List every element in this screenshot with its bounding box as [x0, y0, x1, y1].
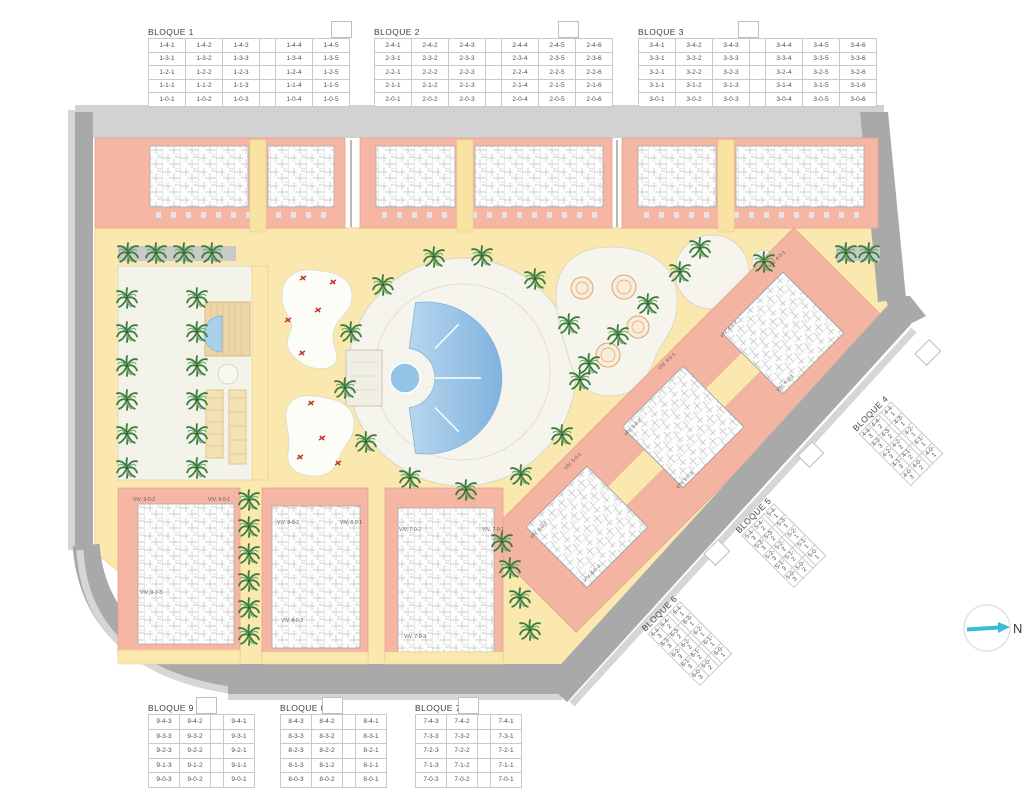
- unit-table: 2-4-12-4-22-4-32-4-42-4-52-4-62-3-12-3-2…: [374, 38, 613, 107]
- table-row: 1-4-11-4-21-4-31-4-41-4-5: [149, 39, 350, 53]
- table-gap: [260, 66, 276, 80]
- unit-cell: 1-2-3: [223, 66, 260, 80]
- unit-cell: 3-4-6: [840, 39, 877, 53]
- north-arrow-icon: [967, 628, 999, 630]
- unit-cell: 2-4-2: [412, 39, 449, 53]
- table-gap: [343, 744, 356, 759]
- unit-label: VIV. 9-0-2: [133, 497, 155, 503]
- unit-cell: 3-3-5: [803, 52, 840, 66]
- table-row: 3-2-13-2-23-2-33-2-43-2-53-2-6: [639, 66, 877, 80]
- table-row: 9-3-39-3-29-3-1: [149, 729, 255, 744]
- unit-cell: 1-1-3: [223, 79, 260, 93]
- unit-cell: 9-4-2: [180, 715, 211, 730]
- unit-cell: 3-1-2: [676, 79, 713, 93]
- unit-cell: 8-0-2: [312, 773, 343, 788]
- table-gap: [343, 729, 356, 744]
- unit-cell: 1-1-5: [313, 79, 350, 93]
- garden-feature-icon: [612, 275, 636, 299]
- unit-cell: 7-4-2: [447, 715, 478, 730]
- table-gap: [486, 66, 502, 80]
- table-row: 9-4-39-4-29-4-1: [149, 715, 255, 730]
- unit-cell: 2-1-3: [449, 79, 486, 93]
- site-plan-page: VIV. 4-0-1VIV. 4-0-2VIV. 4-0-1VIV. 4-0-3…: [0, 0, 1024, 800]
- table-title: BLOQUE 3: [638, 27, 684, 37]
- unit-cell: 1-1-4: [276, 79, 313, 93]
- unit-cell: 2-1-5: [539, 79, 576, 93]
- unit-cell: 1-2-5: [313, 66, 350, 80]
- table-gap: [750, 52, 766, 66]
- unit-cell: 2-0-6: [576, 93, 613, 107]
- table-gap: [260, 79, 276, 93]
- table-gap: [486, 79, 502, 93]
- unit-cell: 7-3-3: [416, 729, 447, 744]
- unit-cell: 8-3-1: [356, 729, 387, 744]
- unit-cell: 1-4-2: [186, 39, 223, 53]
- table-gap: [211, 773, 224, 788]
- unit-label: VIV. 8-0-3: [281, 618, 303, 624]
- unit-cell: 3-3-6: [840, 52, 877, 66]
- unit-cell: 3-1-3: [713, 79, 750, 93]
- unit-cell: 9-2-3: [149, 744, 180, 759]
- unit-cell: 7-3-2: [447, 729, 478, 744]
- unit-cell: 9-0-3: [149, 773, 180, 788]
- unit-cell: 1-4-3: [223, 39, 260, 53]
- unit-cell: 2-2-1: [375, 66, 412, 80]
- garden-feature-icon: [571, 277, 593, 299]
- table-gap: [750, 39, 766, 53]
- unit-cell: 3-2-6: [840, 66, 877, 80]
- unit-cell: 3-4-2: [676, 39, 713, 53]
- table-gap: [486, 93, 502, 107]
- unit-cell: 3-4-4: [766, 39, 803, 53]
- unit-label: VIV. 7-0-3: [404, 634, 426, 640]
- unit-cell: 3-1-4: [766, 79, 803, 93]
- unit-cell: 7-2-1: [491, 744, 522, 759]
- unit-cell: 3-4-5: [803, 39, 840, 53]
- unit-cell: 8-1-2: [312, 758, 343, 773]
- unit-label: VIV. 8-0-2: [277, 520, 299, 526]
- unit-cell: 1-3-4: [276, 52, 313, 66]
- unit-cell: 2-4-5: [539, 39, 576, 53]
- unit-cell: 7-1-2: [447, 758, 478, 773]
- table-row: 2-4-12-4-22-4-32-4-42-4-52-4-6: [375, 39, 613, 53]
- table-gap: [478, 729, 491, 744]
- table-gap: [260, 93, 276, 107]
- unit-cell: 3-3-3: [713, 52, 750, 66]
- unit-cell: 2-0-4: [502, 93, 539, 107]
- south-housing: [118, 488, 503, 664]
- unit-cell: 7-3-1: [491, 729, 522, 744]
- unit-cell: 3-3-2: [676, 52, 713, 66]
- table-gap: [343, 715, 356, 730]
- table-row: 8-4-38-4-28-4-1: [281, 715, 387, 730]
- table-gap: [211, 744, 224, 759]
- unit-cell: 3-0-1: [639, 93, 676, 107]
- table-title: BLOQUE 8: [280, 703, 326, 713]
- unit-cell: 3-2-3: [713, 66, 750, 80]
- unit-cell: 8-1-1: [356, 758, 387, 773]
- table-row: 9-0-39-0-29-0-1: [149, 773, 255, 788]
- unit-label: VIV. 9-0-1: [208, 497, 230, 503]
- table-gap: [260, 52, 276, 66]
- table-row: 3-0-13-0-23-0-33-0-43-0-53-0-6: [639, 93, 877, 107]
- unit-cell: 1-3-1: [149, 52, 186, 66]
- table-row: 2-3-12-3-22-3-32-3-42-3-52-3-6: [375, 52, 613, 66]
- table-row: 3-3-13-3-23-3-33-3-43-3-53-3-6: [639, 52, 877, 66]
- unit-cell: 2-4-4: [502, 39, 539, 53]
- unit-cell: 2-3-1: [375, 52, 412, 66]
- unit-cell: 9-3-2: [180, 729, 211, 744]
- table-row: 7-1-37-1-27-1-1: [416, 758, 522, 773]
- unit-cell: 8-1-3: [281, 758, 312, 773]
- unit-cell: 3-0-5: [803, 93, 840, 107]
- unit-cell: 2-1-4: [502, 79, 539, 93]
- unit-cell: 2-1-1: [375, 79, 412, 93]
- table-row: 2-0-12-0-22-0-32-0-42-0-52-0-6: [375, 93, 613, 107]
- unit-cell: 7-4-1: [491, 715, 522, 730]
- unit-cell: 3-2-4: [766, 66, 803, 80]
- unit-cell: 1-3-5: [313, 52, 350, 66]
- table-gap: [211, 758, 224, 773]
- table-gap: [478, 773, 491, 788]
- unit-cell: 3-0-6: [840, 93, 877, 107]
- unit-cell: 7-1-3: [416, 758, 447, 773]
- pool-bar: [346, 350, 382, 406]
- compass-label: N: [1013, 621, 1022, 636]
- north-compass: N: [964, 605, 1022, 651]
- unit-cell: 8-2-2: [312, 744, 343, 759]
- wood-deck: [204, 302, 250, 356]
- unit-cell: 7-0-3: [416, 773, 447, 788]
- unit-cell: 9-2-2: [180, 744, 211, 759]
- unit-cell: 9-3-3: [149, 729, 180, 744]
- table-row: 1-1-11-1-21-1-31-1-41-1-5: [149, 79, 350, 93]
- unit-cell: 3-4-3: [713, 39, 750, 53]
- south-road: [228, 664, 562, 694]
- table-row: 2-2-12-2-22-2-32-2-42-2-52-2-6: [375, 66, 613, 80]
- round-feature: [218, 364, 238, 384]
- unit-cell: 1-2-4: [276, 66, 313, 80]
- unit-cell: 2-4-1: [375, 39, 412, 53]
- table-row: 1-2-11-2-21-2-31-2-41-2-5: [149, 66, 350, 80]
- unit-cell: 1-4-4: [276, 39, 313, 53]
- table-row: 8-2-38-2-28-2-1: [281, 744, 387, 759]
- unit-cell: 7-0-1: [491, 773, 522, 788]
- unit-cell: 8-3-3: [281, 729, 312, 744]
- table-row: 3-1-13-1-23-1-33-1-43-1-53-1-6: [639, 79, 877, 93]
- unit-cell: 9-1-1: [224, 758, 255, 773]
- unit-cell: 2-0-1: [375, 93, 412, 107]
- table-title: BLOQUE 2: [374, 27, 420, 37]
- table-gap: [750, 66, 766, 80]
- unit-cell: 2-2-3: [449, 66, 486, 80]
- central-plaza: [346, 258, 576, 486]
- unit-cell: 2-2-6: [576, 66, 613, 80]
- table-gap: [486, 39, 502, 53]
- unit-table: 3-4-13-4-23-4-33-4-43-4-53-4-63-3-13-3-2…: [638, 38, 877, 107]
- unit-cell: 8-2-1: [356, 744, 387, 759]
- unit-cell: 2-0-2: [412, 93, 449, 107]
- table-gap: [211, 729, 224, 744]
- unit-table: 8-4-38-4-28-4-18-3-38-3-28-3-18-2-38-2-2…: [280, 714, 387, 788]
- unit-cell: 9-3-1: [224, 729, 255, 744]
- unit-cell: 8-4-2: [312, 715, 343, 730]
- table-gap: [478, 715, 491, 730]
- table-row: 8-0-38-0-28-0-1: [281, 773, 387, 788]
- unit-cell: 8-0-3: [281, 773, 312, 788]
- table-gap: [260, 39, 276, 53]
- unit-cell: 8-0-1: [356, 773, 387, 788]
- unit-cell: 9-1-2: [180, 758, 211, 773]
- unit-cell: 8-4-3: [281, 715, 312, 730]
- unit-cell: 7-0-2: [447, 773, 478, 788]
- table-row: 2-1-12-1-22-1-32-1-42-1-52-1-6: [375, 79, 613, 93]
- stair-symbol-box: [196, 697, 217, 714]
- unit-cell: 8-3-2: [312, 729, 343, 744]
- unit-cell: 2-3-2: [412, 52, 449, 66]
- unit-cell: 7-2-3: [416, 744, 447, 759]
- table-gap: [750, 79, 766, 93]
- unit-table: 9-4-39-4-29-4-19-3-39-3-29-3-19-2-39-2-2…: [148, 714, 255, 788]
- unit-table: 1-4-11-4-21-4-31-4-41-4-51-3-11-3-21-3-3…: [148, 38, 350, 107]
- unit-cell: 3-1-5: [803, 79, 840, 93]
- unit-cell: 1-4-5: [313, 39, 350, 53]
- unit-cell: 1-3-3: [223, 52, 260, 66]
- unit-cell: 1-3-2: [186, 52, 223, 66]
- unit-cell: 3-1-1: [639, 79, 676, 93]
- table-row: 3-4-13-4-23-4-33-4-43-4-53-4-6: [639, 39, 877, 53]
- unit-cell: 3-2-5: [803, 66, 840, 80]
- table-row: 8-3-38-3-28-3-1: [281, 729, 387, 744]
- unit-cell: 3-0-2: [676, 93, 713, 107]
- unit-cell: 3-2-1: [639, 66, 676, 80]
- unit-cell: 8-4-1: [356, 715, 387, 730]
- table-row: 9-1-39-1-29-1-1: [149, 758, 255, 773]
- unit-cell: 2-2-5: [539, 66, 576, 80]
- west-road: [75, 112, 93, 552]
- unit-cell: 2-0-5: [539, 93, 576, 107]
- table-bloque-7: BLOQUE 7 7-4-37-4-27-4-17-3-37-3-27-3-17…: [415, 698, 522, 788]
- table-gap: [343, 758, 356, 773]
- garden-feature-icon: [627, 316, 649, 338]
- table-gap: [211, 715, 224, 730]
- unit-cell: 8-2-3: [281, 744, 312, 759]
- table-title: BLOQUE 1: [148, 27, 194, 37]
- unit-cell: 1-0-5: [313, 93, 350, 107]
- north-road: [75, 105, 884, 138]
- unit-cell: 3-0-3: [713, 93, 750, 107]
- unit-cell: 2-1-2: [412, 79, 449, 93]
- unit-cell: 2-1-6: [576, 79, 613, 93]
- unit-cell: 7-1-1: [491, 758, 522, 773]
- unit-cell: 2-3-6: [576, 52, 613, 66]
- unit-cell: 2-3-4: [502, 52, 539, 66]
- unit-cell: 1-1-2: [186, 79, 223, 93]
- unit-cell: 3-3-1: [639, 52, 676, 66]
- unit-cell: 9-0-2: [180, 773, 211, 788]
- unit-cell: 2-2-2: [412, 66, 449, 80]
- unit-cell: 1-0-4: [276, 93, 313, 107]
- unit-cell: 3-4-1: [639, 39, 676, 53]
- unit-label: VIV. 8-0-1: [340, 520, 362, 526]
- unit-table: 7-4-37-4-27-4-17-3-37-3-27-3-17-2-37-2-2…: [415, 714, 522, 788]
- unit-label: VIV. 7-0-1: [482, 527, 504, 533]
- unit-cell: 1-2-2: [186, 66, 223, 80]
- unit-cell: 2-2-4: [502, 66, 539, 80]
- table-row: 9-2-39-2-29-2-1: [149, 744, 255, 759]
- unit-cell: 1-1-1: [149, 79, 186, 93]
- stair-symbol-box: [558, 21, 579, 38]
- table-row: 7-0-37-0-27-0-1: [416, 773, 522, 788]
- table-bloque-1: BLOQUE 1 1-4-11-4-21-4-31-4-41-4-51-3-11…: [148, 22, 350, 107]
- stair-symbol-box: [738, 21, 759, 38]
- garden-feature-icon: [596, 343, 620, 367]
- stair-symbol-box: [322, 697, 343, 714]
- table-gap: [478, 744, 491, 759]
- unit-cell: 3-3-4: [766, 52, 803, 66]
- table-gap: [478, 758, 491, 773]
- unit-label: VIV. 7-0-2: [399, 527, 421, 533]
- table-bloque-9: BLOQUE 9 9-4-39-4-29-4-19-3-39-3-29-3-19…: [148, 698, 255, 788]
- unit-cell: 9-2-1: [224, 744, 255, 759]
- table-title: BLOQUE 9: [148, 703, 194, 713]
- unit-cell: 7-2-2: [447, 744, 478, 759]
- table-row: 1-0-11-0-21-0-31-0-41-0-5: [149, 93, 350, 107]
- table-gap: [486, 52, 502, 66]
- unit-cell: 2-0-3: [449, 93, 486, 107]
- unit-cell: 2-3-3: [449, 52, 486, 66]
- unit-cell: 1-4-1: [149, 39, 186, 53]
- table-bloque-3: BLOQUE 3 3-4-13-4-23-4-33-4-43-4-53-4-63…: [638, 22, 877, 107]
- unit-cell: 3-2-2: [676, 66, 713, 80]
- table-gap: [343, 773, 356, 788]
- unit-cell: 9-4-1: [224, 715, 255, 730]
- unit-cell: 1-0-1: [149, 93, 186, 107]
- stair-symbol-box: [458, 697, 479, 714]
- unit-label: VIV. 9-0-3: [140, 590, 162, 596]
- unit-cell: 2-4-6: [576, 39, 613, 53]
- table-gap: [750, 93, 766, 107]
- stair-symbol-box: [331, 21, 352, 38]
- unit-cell: 3-0-4: [766, 93, 803, 107]
- table-title: BLOQUE 7: [415, 703, 461, 713]
- unit-cell: 1-2-1: [149, 66, 186, 80]
- table-row: 7-3-37-3-27-3-1: [416, 729, 522, 744]
- unit-cell: 2-4-3: [449, 39, 486, 53]
- table-bloque-8: BLOQUE 8 8-4-38-4-28-4-18-3-38-3-28-3-18…: [280, 698, 387, 788]
- unit-cell: 1-0-2: [186, 93, 223, 107]
- unit-cell: 1-0-3: [223, 93, 260, 107]
- table-row: 7-4-37-4-27-4-1: [416, 715, 522, 730]
- unit-cell: 9-4-3: [149, 715, 180, 730]
- unit-cell: 3-1-6: [840, 79, 877, 93]
- unit-cell: 2-3-5: [539, 52, 576, 66]
- table-row: 8-1-38-1-28-1-1: [281, 758, 387, 773]
- unit-cell: 9-0-1: [224, 773, 255, 788]
- table-bloque-2: BLOQUE 2 2-4-12-4-22-4-32-4-42-4-52-4-62…: [374, 22, 613, 107]
- table-row: 1-3-11-3-21-3-31-3-41-3-5: [149, 52, 350, 66]
- unit-cell: 9-1-3: [149, 758, 180, 773]
- unit-cell: 7-4-3: [416, 715, 447, 730]
- table-row: 7-2-37-2-27-2-1: [416, 744, 522, 759]
